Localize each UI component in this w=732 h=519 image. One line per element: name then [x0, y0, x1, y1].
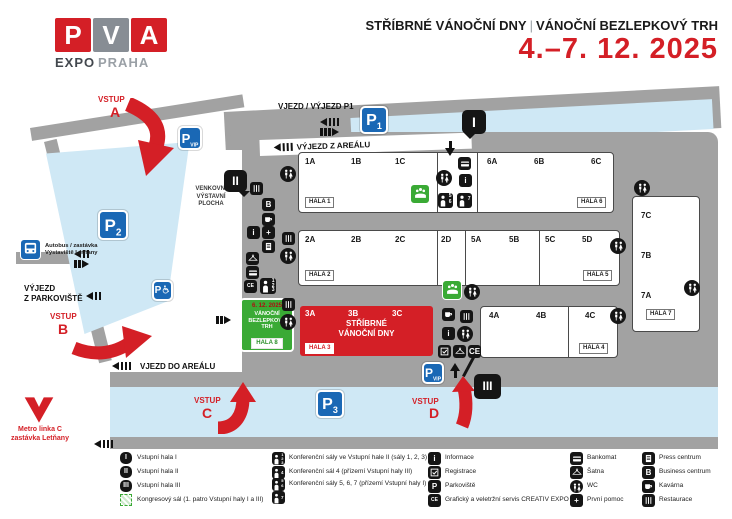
legend-label: Business centrum — [659, 468, 711, 475]
hall-1-tag: HALA 1 — [305, 197, 334, 208]
wc-icon — [634, 180, 650, 196]
section-3a: 3A — [305, 309, 315, 318]
num-6: 6 — [449, 199, 452, 205]
legend-item: Registrace — [428, 468, 476, 476]
legend-item: 56Konferenční sály 5, 6, 7 (přízemí Vstu… — [272, 480, 426, 488]
first-aid-icon: + — [570, 494, 583, 507]
hall-2-tag: HALA 2 — [305, 270, 334, 281]
hall-3-event-line2: VÁNOČNÍ DNY — [300, 329, 433, 339]
event-title-right: VÁNOČNÍ BEZLEPKOVÝ TRH — [536, 18, 718, 33]
conference-7-icon: 7 — [272, 491, 285, 504]
legend-label: Informace — [445, 454, 474, 461]
wc-icon — [280, 166, 296, 182]
legend-label: Vstupní hala III — [137, 482, 180, 489]
hall-7-tag: HALA 7 — [646, 309, 675, 320]
info-icon: i — [459, 174, 472, 187]
p-letter: P — [155, 285, 162, 296]
arrow-down-icon — [445, 148, 455, 161]
arrow-left-icon — [320, 118, 339, 126]
metro-logo — [22, 394, 56, 424]
bus-stop-label-2: Výstaviště Letňany — [45, 250, 98, 257]
legend-item: WC — [570, 482, 598, 490]
section-2b: 2B — [351, 235, 361, 244]
section-6b: 6B — [534, 157, 544, 166]
vip-label: VIP — [433, 376, 441, 382]
hall-iii-icon: III — [120, 480, 132, 492]
p2-number: 2 — [116, 227, 122, 238]
arrow-left-icon — [86, 292, 101, 300]
legend-item: IVstupní hala I — [120, 454, 177, 462]
p-letter: P — [105, 216, 116, 235]
legend-label: Kongresový sál (1. patro Vstupní haly I … — [137, 496, 263, 503]
p1-gate-label: VJEZD / VÝJEZD P1 — [278, 102, 354, 111]
entrance-d-letter: D — [429, 406, 439, 420]
info-icon: i — [442, 327, 455, 340]
p1-number: 1 — [377, 121, 382, 131]
legend-item: BBusiness centrum — [642, 468, 711, 476]
conference-1-2-3-icon: 123 — [260, 278, 276, 294]
first-aid-icon: + — [262, 226, 275, 239]
conference-5-6-icon: 56 — [272, 478, 285, 491]
metro-label-1: Metro linka C — [2, 426, 78, 435]
restaurant-icon — [460, 310, 473, 323]
restaurant-icon — [250, 182, 263, 195]
hall-2-5-block: 2A 2B 2C 2D 5A 5B 5C 5D HALA 2 HALA 5 — [298, 230, 620, 286]
hall-entrance-ii-marker: II — [224, 170, 247, 192]
business-centre-icon: B — [262, 198, 275, 211]
hall-entrance-iii-marker: III — [474, 374, 501, 399]
event-title: STŘÍBRNÉ VÁNOČNÍ DNY|VÁNOČNÍ BEZLEPKOVÝ … — [250, 18, 718, 33]
legend-item: IIIVstupní hala III — [120, 482, 180, 490]
legend-label: Konferenční sály 5, 6, 7 (přízemí Vstupn… — [289, 480, 426, 487]
logo-letter-v: V — [93, 18, 129, 52]
section-3b: 3B — [348, 309, 358, 318]
wc-icon — [457, 326, 473, 342]
creativ-expo-icon: CE — [244, 280, 257, 293]
legend-item: Bankomat — [570, 454, 616, 462]
legend-item: IIVstupní hala II — [120, 468, 179, 476]
legend-label: První pomoc — [587, 496, 624, 503]
logo-praha: PRAHA — [98, 56, 149, 69]
section-5c: 5C — [545, 235, 555, 244]
section-4c: 4C — [585, 311, 595, 320]
outdoor-line-2: VÝSTAVNÍ — [182, 194, 240, 202]
divider — [568, 307, 569, 357]
legend-label: Press centrum — [659, 454, 701, 461]
congress-hall-icon — [442, 280, 462, 300]
section-5d: 5D — [582, 235, 592, 244]
hall-4-block: 4A 4B 4C HALA 4 — [480, 306, 618, 358]
congress-hall-icon — [120, 494, 132, 506]
registration-icon — [438, 345, 451, 358]
num-3: 3 — [272, 287, 275, 293]
expo-map-page: P V A EXPO PRAHA STŘÍBRNÉ VÁNOČNÍ DNY|VÁ… — [0, 0, 732, 519]
legend-item: 123Konferenční sály ve Vstupní hale II (… — [272, 454, 427, 462]
bus-stop-label-1: Autobus / zastávka — [45, 243, 98, 250]
legend-item: Kavárna — [642, 482, 683, 490]
legend-label: Restaurace — [659, 496, 692, 503]
section-6c: 6C — [591, 157, 601, 166]
legend-label: Grafický a veletržní servis CREATIV EXPO — [445, 496, 569, 503]
arrow-right-icon — [320, 128, 339, 136]
wc-icon — [570, 480, 583, 493]
section-2a: 2A — [305, 235, 315, 244]
info-icon: i — [428, 452, 441, 465]
entrance-a-arrow — [118, 98, 174, 182]
section-5a: 5A — [471, 235, 481, 244]
parking-p1-sign: P1 — [360, 106, 388, 134]
hall-i-icon: I — [120, 452, 132, 464]
wc-icon — [436, 170, 452, 186]
conference-1-2-3-icon: 123 — [272, 452, 285, 465]
legend-item: +První pomoc — [570, 496, 624, 504]
legend-item: Press centrum — [642, 454, 701, 462]
legend-item: PParkoviště — [428, 482, 475, 490]
arrow-right-icon — [74, 260, 89, 268]
legend-label: Vstupní hala II — [137, 468, 179, 475]
p-letter: P — [182, 131, 191, 146]
p-letter: P — [366, 112, 377, 129]
parking-exit-label-2: Z PARKOVIŠTĚ — [24, 294, 83, 303]
divider — [465, 231, 466, 285]
congress-hall-icon — [410, 184, 430, 204]
divider — [539, 231, 540, 285]
atm-icon — [458, 157, 471, 170]
hall-5-tag: HALA 5 — [583, 270, 612, 281]
conference-7-icon: 7 — [457, 193, 472, 208]
road-south-outer — [110, 437, 718, 449]
num-7: 7 — [468, 197, 471, 203]
road-south-inner — [110, 372, 718, 387]
legend-label: Bankomat — [587, 454, 616, 461]
arrow-right-icon — [216, 316, 231, 324]
section-1b: 1B — [351, 157, 361, 166]
marker-pointer — [464, 133, 476, 145]
business-centre-icon: B — [642, 466, 655, 479]
hall-3-event: STŘÍBRNÉ VÁNOČNÍ DNY — [300, 319, 433, 339]
hall-7-block: 7C 7B 7A HALA 7 — [632, 196, 700, 332]
restaurant-icon — [282, 232, 295, 245]
cloakroom-icon — [246, 252, 259, 265]
metro-label-2: zastávka Letňany — [2, 435, 78, 444]
cafe-icon — [262, 213, 275, 226]
marker-pointer — [238, 191, 250, 203]
exit-area-label: VÝJEZD Z AREÁLU — [297, 140, 371, 152]
cloakroom-icon — [453, 345, 466, 358]
wc-icon — [610, 238, 626, 254]
wc-icon — [464, 284, 480, 300]
section-3c: 3C — [392, 309, 402, 318]
restaurant-icon — [642, 494, 655, 507]
parking-vip-sign-top: PVIP — [178, 126, 202, 150]
section-1a: 1A — [305, 157, 315, 166]
parking-p2-sign: P2 — [98, 210, 128, 240]
section-7b: 7B — [641, 251, 651, 260]
legend-label: Vstupní hala I — [137, 454, 177, 461]
parking-vip-sign-bottom: PVIP — [422, 362, 444, 384]
hall-entrance-i-marker: I — [462, 110, 486, 134]
cafe-icon — [642, 480, 655, 493]
vip-label: VIP — [190, 143, 198, 149]
legend-item: Restaurace — [642, 496, 692, 504]
hall-3-event-line1: STŘÍBRNÉ — [300, 319, 433, 329]
hall-3-block: 3A 3B 3C STŘÍBRNÉ VÁNOČNÍ DNY HALA 3 — [300, 306, 433, 356]
legend-label: Konferenční sál 4 (přízemí Vstupní haly … — [289, 468, 412, 475]
section-4a: 4A — [489, 311, 499, 320]
legend-label: Šatna — [587, 468, 604, 475]
restaurant-icon — [282, 298, 295, 311]
creativ-expo-icon: CE — [428, 494, 441, 507]
registration-icon — [428, 466, 441, 479]
p3-number: 3 — [333, 405, 338, 415]
hall-ii-icon: II — [120, 466, 132, 478]
hall-6-tag: HALA 6 — [577, 197, 606, 208]
section-1c: 1C — [395, 157, 405, 166]
parking-icon: P — [428, 480, 441, 493]
arrow-left-icon — [112, 362, 131, 370]
legend-item: Kongresový sál (1. patro Vstupní haly I … — [120, 496, 263, 504]
hall-4-tag: HALA 4 — [579, 343, 608, 354]
parking-disabled-sign: P — [152, 280, 173, 301]
entrance-b-letter: B — [58, 322, 68, 336]
legend-label: Registrace — [445, 468, 476, 475]
logo-expo: EXPO — [55, 56, 95, 69]
section-5b: 5B — [509, 235, 519, 244]
legend-item: iInformace — [428, 454, 474, 462]
info-icon: i — [247, 226, 260, 239]
hall-1-6-block: 1A 1B 1C 6A 6B 6C HALA 1 HALA 6 — [298, 152, 614, 213]
legend-item: CEGrafický a veletržní servis CREATIV EX… — [428, 496, 569, 504]
wc-icon — [684, 280, 700, 296]
arrow-left-icon — [274, 143, 293, 152]
p-letter: P — [322, 396, 333, 413]
legend-item: 4Konferenční sál 4 (přízemí Vstupní haly… — [272, 468, 412, 476]
parking-p3-sign: P3 — [316, 390, 344, 418]
p-letter: P — [425, 366, 433, 380]
atm-icon — [246, 266, 259, 279]
logo-letter-a: A — [131, 18, 167, 52]
logo-letter-p: P — [55, 18, 91, 52]
entrance-b-arrow — [68, 316, 152, 362]
section-7c: 7C — [641, 211, 651, 220]
cloakroom-icon — [570, 466, 583, 479]
event-dates: 4.–7. 12. 2025 — [330, 33, 718, 65]
wheelchair-icon — [161, 285, 170, 294]
parking-exit-label-1: VÝJEZD — [24, 284, 55, 293]
legend-label: Parkoviště — [445, 482, 475, 489]
entrance-c-arrow — [210, 382, 256, 434]
section-7a: 7A — [641, 291, 651, 300]
arrow-up-icon — [450, 358, 460, 371]
divider — [437, 231, 438, 285]
arrow-left-icon — [94, 440, 113, 448]
section-6a: 6A — [487, 157, 497, 166]
title-separator: | — [527, 18, 536, 33]
section-4b: 4B — [536, 311, 546, 320]
wc-icon — [610, 308, 626, 324]
wc-icon — [280, 248, 296, 264]
press-centre-icon — [642, 452, 655, 465]
outdoor-line-3: PLOCHA — [182, 201, 240, 209]
event-title-left: STŘÍBRNÉ VÁNOČNÍ DNY — [366, 18, 527, 33]
legend-label: Kavárna — [659, 482, 683, 489]
bus-stop-icon — [20, 239, 41, 260]
creativ-expo-icon: CE — [468, 345, 481, 358]
conference-5-6-icon: 56 — [438, 193, 453, 208]
enter-area-label: VJEZD DO AREÁLU — [140, 362, 215, 371]
divider — [477, 153, 478, 212]
section-2d: 2D — [441, 235, 451, 244]
legend-label: Konferenční sály ve Vstupní hale II (sál… — [289, 454, 427, 461]
wc-icon — [280, 314, 296, 330]
legend-label: WC — [587, 482, 598, 489]
hall-8-tag: HALA 8 — [251, 338, 282, 349]
press-centre-icon — [262, 240, 275, 253]
cafe-icon — [442, 308, 455, 321]
atm-icon — [570, 452, 583, 465]
hall-3-tag: HALA 3 — [305, 343, 334, 354]
section-2c: 2C — [395, 235, 405, 244]
legend-item: Šatna — [570, 468, 604, 476]
